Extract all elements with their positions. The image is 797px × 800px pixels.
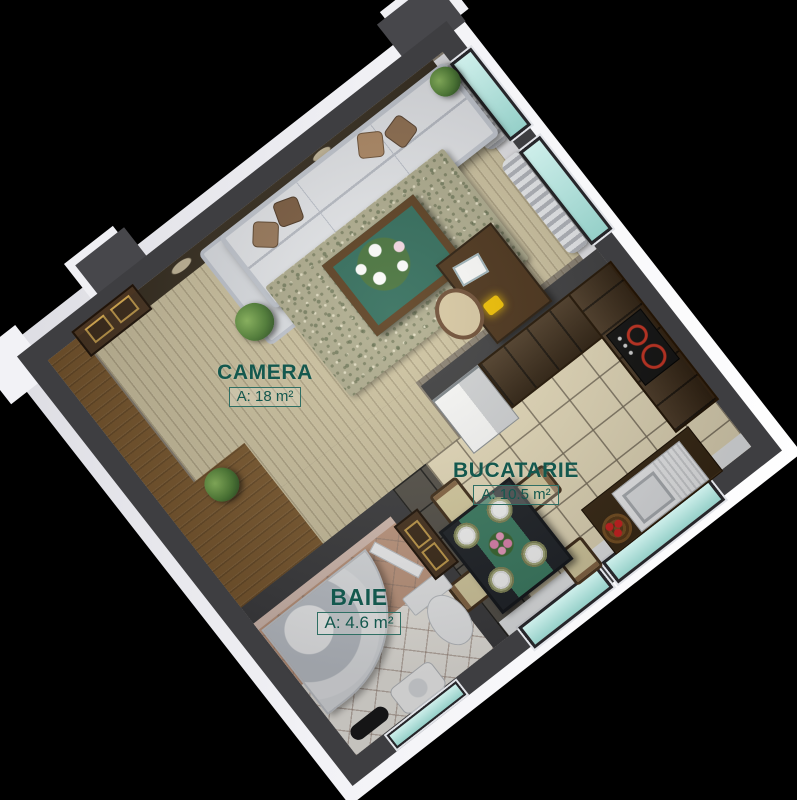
entry-door-panel-2 <box>110 295 140 324</box>
room-label-bucatarie: BUCATARIE A: 10.5 m² <box>431 459 601 505</box>
room-name-baie: BAIE <box>274 584 444 610</box>
bath-door-panel-1 <box>404 520 432 549</box>
room-area-bucatarie: A: 10.5 m² <box>473 485 558 505</box>
room-area-baie: A: 4.6 m² <box>317 612 402 635</box>
floorplan <box>17 21 782 786</box>
room-label-baie: BAIE A: 4.6 m² <box>274 584 444 635</box>
room-label-camera: CAMERA A: 18 m² <box>180 361 350 407</box>
bath-door-panel-2 <box>421 542 449 571</box>
scene-background: CAMERA A: 18 m² BUCATARIE A: 10.5 m² BAI… <box>0 0 797 800</box>
sofa-pillow-3 <box>356 131 385 160</box>
sofa-pillow-1 <box>252 221 279 248</box>
room-name-bucatarie: BUCATARIE <box>431 459 601 483</box>
room-name-camera: CAMERA <box>180 361 350 385</box>
entry-door-panel-1 <box>84 314 114 343</box>
room-area-camera: A: 18 m² <box>229 387 302 407</box>
